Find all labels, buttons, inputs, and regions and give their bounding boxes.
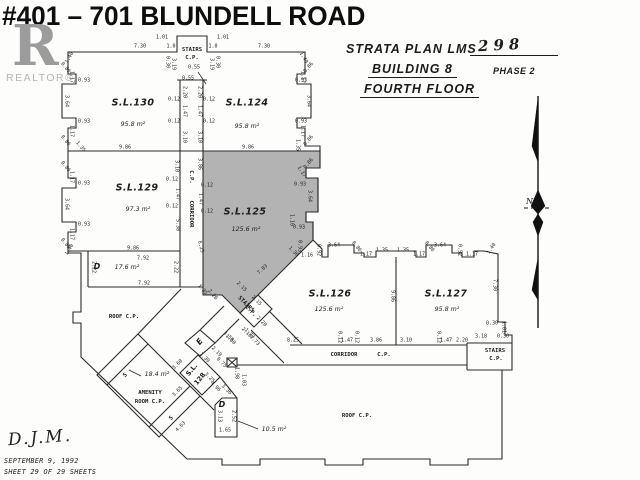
svg-text:N: N [525, 197, 534, 206]
sheet-number: SHEET 29 OF 29 SHEETS [4, 468, 96, 476]
north-arrow-icon: N [524, 88, 554, 334]
plan-date: SEPTEMBER 9, 1992 [4, 457, 79, 465]
strata-plan-sheet: { "title": "#401 – 701 BLUNDELL ROAD", "… [0, 0, 640, 480]
unit-sl125-shape [203, 151, 320, 313]
diagonal-structures [97, 295, 272, 437]
